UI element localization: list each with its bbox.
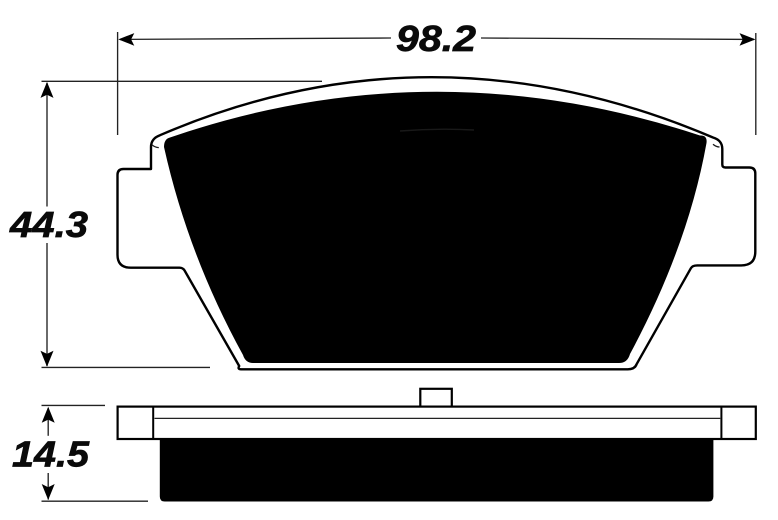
svg-text:98.2: 98.2: [396, 18, 476, 59]
svg-text:14.5: 14.5: [12, 434, 90, 475]
svg-text:44.3: 44.3: [9, 204, 88, 245]
